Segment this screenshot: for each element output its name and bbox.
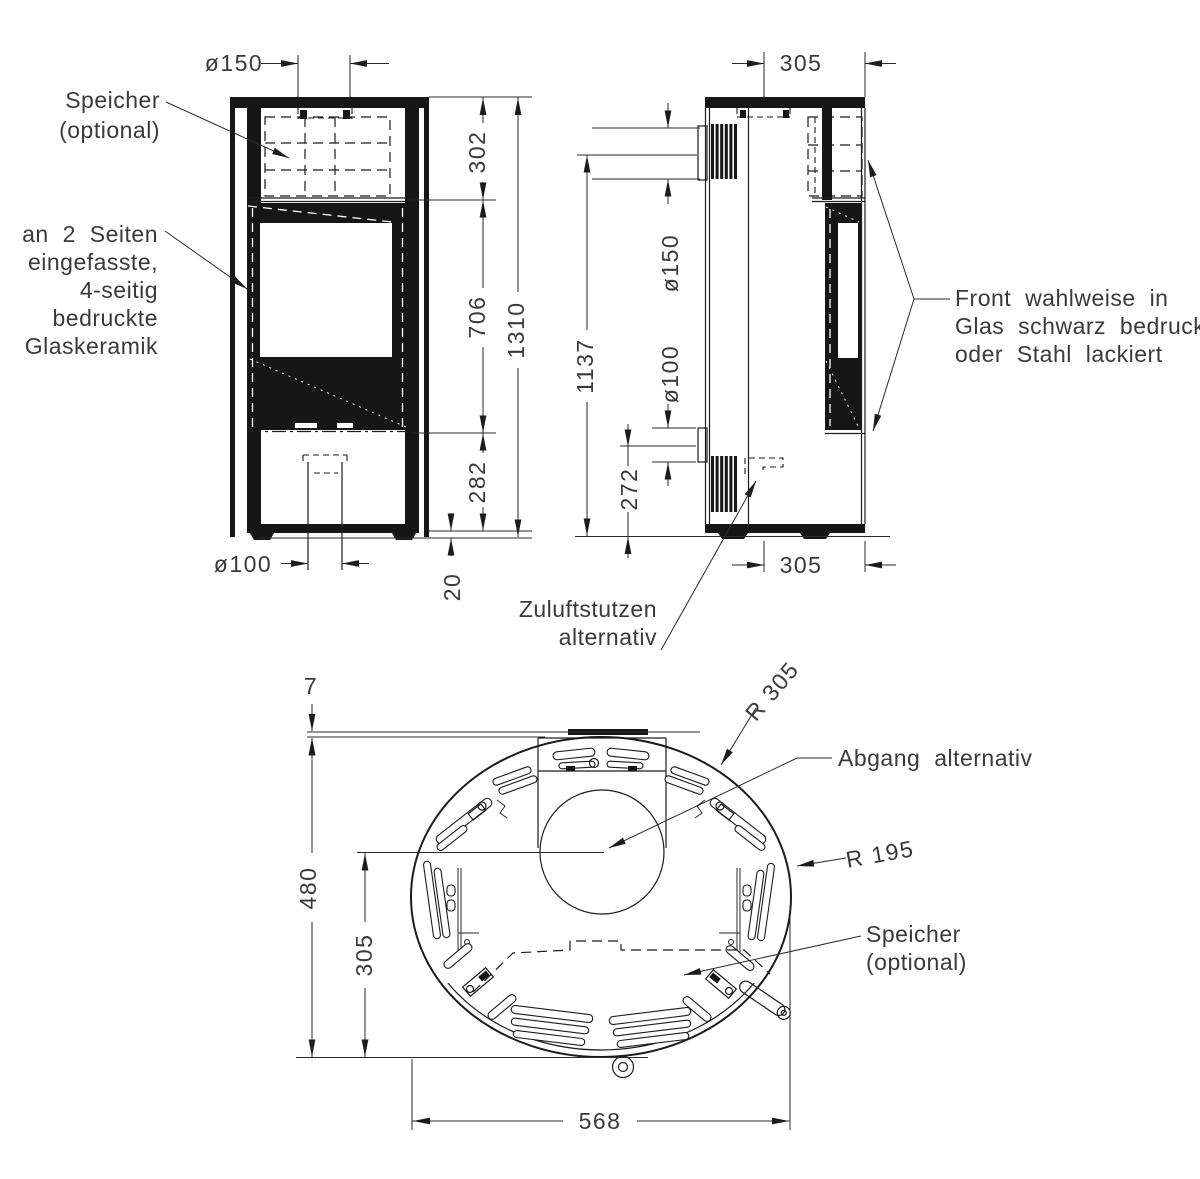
- dim-front-window: 706: [464, 296, 490, 339]
- dim-side-depth-bottom: 305: [780, 552, 823, 578]
- dim-plan-depth: 480: [295, 867, 321, 910]
- dim-front-flue-diameter: ø150: [205, 50, 263, 76]
- front-left-rail: [230, 108, 235, 537]
- plan-bottom-left-slots: [442, 942, 517, 1021]
- label-abgang: Abgang alternativ: [609, 745, 1033, 848]
- dim-side-depth-top: 305: [780, 50, 823, 76]
- side-top-collar: [737, 108, 790, 118]
- dim-front-pipe-diameter: ø100: [214, 551, 272, 577]
- side-window-slot: [838, 223, 858, 358]
- technical-drawing: ø150 302 706 282 1310 20 ø100: [0, 0, 1200, 1179]
- glass-label-line1: an 2 Seiten: [22, 221, 158, 247]
- front-material-line3: oder Stahl lackiert: [955, 341, 1163, 367]
- plan-front-foot: [613, 1057, 634, 1078]
- front-speicher-outline: [265, 117, 390, 196]
- plan-speicher-outline: [473, 941, 770, 992]
- side-speicher-outline: [808, 117, 862, 196]
- drawing-page: ø150 302 706 282 1310 20 ø100: [0, 0, 1200, 1179]
- plan-view: [411, 729, 793, 1078]
- side-zuluft-stub: [745, 458, 783, 474]
- dim-side-inlet-height: 272: [616, 468, 642, 511]
- plan-upper-left-slots: [434, 766, 538, 852]
- plan-upper-right-slots: [664, 766, 768, 852]
- front-top-cap: [230, 97, 429, 108]
- dim-front-total: 1310: [503, 301, 529, 358]
- plan-speicher-label-line2: (optional): [866, 949, 967, 975]
- plan-body-outline: [411, 737, 791, 1057]
- dim-plan-radius-inner: R 195: [844, 835, 916, 873]
- glass-label-line5: Glaskeramik: [25, 333, 158, 359]
- dim-front-lower: 282: [464, 461, 490, 504]
- plan-right-slots: [719, 863, 775, 952]
- plan-top-slots: [553, 748, 650, 771]
- glass-label-line2: eingefasste,: [28, 249, 158, 275]
- side-bottom-vents: [711, 456, 737, 512]
- dim-plan-gap: 7: [304, 673, 318, 699]
- side-top-vents: [711, 124, 737, 179]
- speicher-label-line1: Speicher: [65, 87, 160, 113]
- speicher-label-line2: (optional): [59, 117, 160, 143]
- zuluft-label-line2: alternativ: [559, 624, 657, 650]
- front-right-rail: [424, 108, 429, 537]
- label-front-material: Front wahlweise in Glas schwarz bedruckt…: [868, 160, 1200, 431]
- front-material-line2: Glas schwarz bedruckt: [955, 313, 1200, 339]
- plan-left-slots: [423, 861, 479, 952]
- dim-front-foot-gap: 20: [439, 573, 465, 602]
- abgang-label: Abgang alternativ: [838, 745, 1033, 771]
- plan-speicher-label-line1: Speicher: [866, 921, 961, 947]
- dim-plan-width: 568: [579, 1108, 622, 1134]
- plan-bottom-right-slots: [681, 944, 755, 1023]
- label-glass-ceramic: an 2 Seiten eingefasste, 4-seitig bedruc…: [22, 221, 247, 359]
- dim-side-inlet-diameter: ø100: [657, 345, 683, 403]
- front-window: [260, 223, 392, 357]
- side-top-cap: [705, 97, 865, 108]
- dim-plan-radius-outer: R 305: [740, 656, 804, 725]
- dim-plan-flue-to-front: 305: [351, 934, 377, 977]
- plan-dimensions: 7 480 305 568 R 305 R 195: [295, 656, 916, 1134]
- dim-side-flue-diameter: ø150: [657, 234, 683, 292]
- glass-label-line3: 4-seitig: [80, 277, 158, 303]
- front-air-pipe: [303, 455, 347, 570]
- zuluft-label-line1: Zuluftstutzen: [519, 596, 657, 622]
- front-bottom-cap: [247, 524, 419, 533]
- glass-label-line4: bedruckte: [52, 305, 158, 331]
- dim-front-upper: 302: [464, 131, 490, 174]
- dim-side-flue-height: 1137: [572, 338, 598, 393]
- front-material-line1: Front wahlweise in: [955, 285, 1168, 311]
